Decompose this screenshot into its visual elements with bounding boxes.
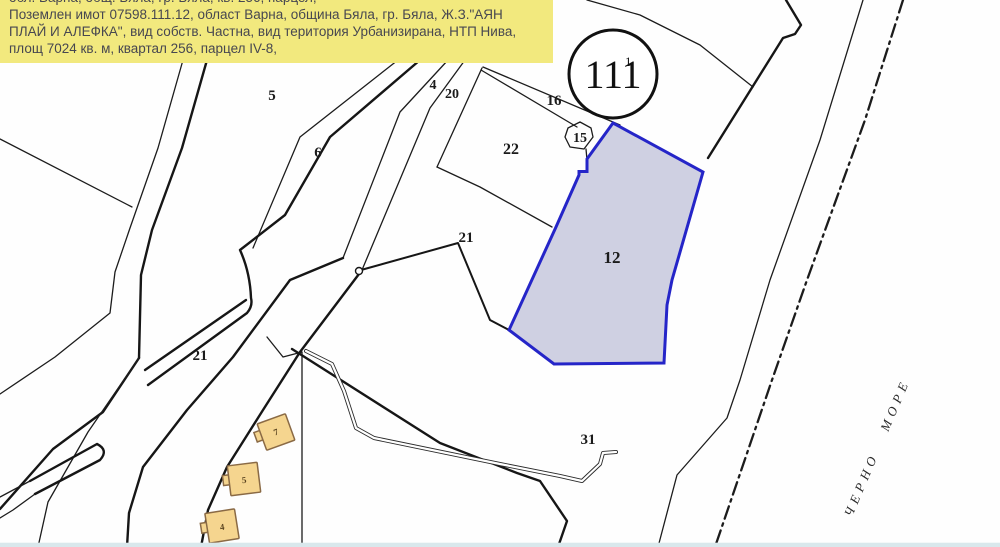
boundary-line <box>481 70 577 127</box>
info-line-3: площ 7024 кв. м, квартал 256, парцел IV-… <box>9 40 543 57</box>
block-number-superscript: 1 <box>625 54 632 69</box>
cadastral-map-view[interactable]: 7 5 4 5 6 4 20 16 15 22 21 12 21 <box>0 0 1000 547</box>
road-edge <box>127 258 343 547</box>
road-edge <box>38 358 139 547</box>
parcel-label-16: 16 <box>547 93 563 109</box>
parcel-label-6: 6 <box>314 145 322 161</box>
track-core <box>306 351 616 481</box>
boundary-line <box>708 0 801 158</box>
road-edge <box>0 139 132 207</box>
property-info-box: обл. Варна, общ. Бяла, гр. Бяла, кв. 256… <box>0 0 553 63</box>
bottom-sea-strip <box>0 543 1000 547</box>
block-number: 111 <box>584 52 641 97</box>
parcel-label-21b: 21 <box>193 348 208 364</box>
info-line-2: ПЛАЙ И АЛЕФКА", вид собств. Частна, вид … <box>9 23 543 40</box>
boundary-line <box>437 68 482 167</box>
building-5: 5 <box>221 462 260 496</box>
parcel-label-22: 22 <box>503 141 519 158</box>
boundary-line <box>437 167 552 227</box>
map-canvas[interactable]: 7 5 4 5 6 4 20 16 15 22 21 12 21 <box>0 0 1000 547</box>
parcel-label-21: 21 <box>459 230 474 246</box>
building-4: 4 <box>199 509 239 544</box>
map-lines <box>0 0 903 547</box>
road-edge <box>139 60 207 358</box>
boundary-line <box>361 243 509 330</box>
road-edge <box>0 481 35 518</box>
boundary-line <box>267 337 302 357</box>
parcel-label-4: 4 <box>430 78 437 93</box>
block-number-circle: 111 1 <box>569 30 657 118</box>
road-edge <box>0 60 183 394</box>
parcel-label-12: 12 <box>604 248 621 267</box>
info-line-1: Поземлен имот 07598.111.12, област Варна… <box>9 6 543 23</box>
sea-label: ЧЕРНО МОРЕ <box>841 376 913 519</box>
parcel-label-20: 20 <box>445 87 459 102</box>
road-edge <box>148 60 420 385</box>
boundary-line <box>658 0 863 547</box>
road-edge <box>201 270 362 547</box>
parcel-label-15: 15 <box>573 131 587 146</box>
highlighted-parcel-12[interactable] <box>509 123 703 364</box>
parcel-label-31: 31 <box>581 432 596 448</box>
survey-point <box>356 268 363 275</box>
parcel-label-5: 5 <box>268 88 276 104</box>
parcel-labels: 5 6 4 20 16 15 22 21 12 21 31 5 <box>0 78 621 448</box>
